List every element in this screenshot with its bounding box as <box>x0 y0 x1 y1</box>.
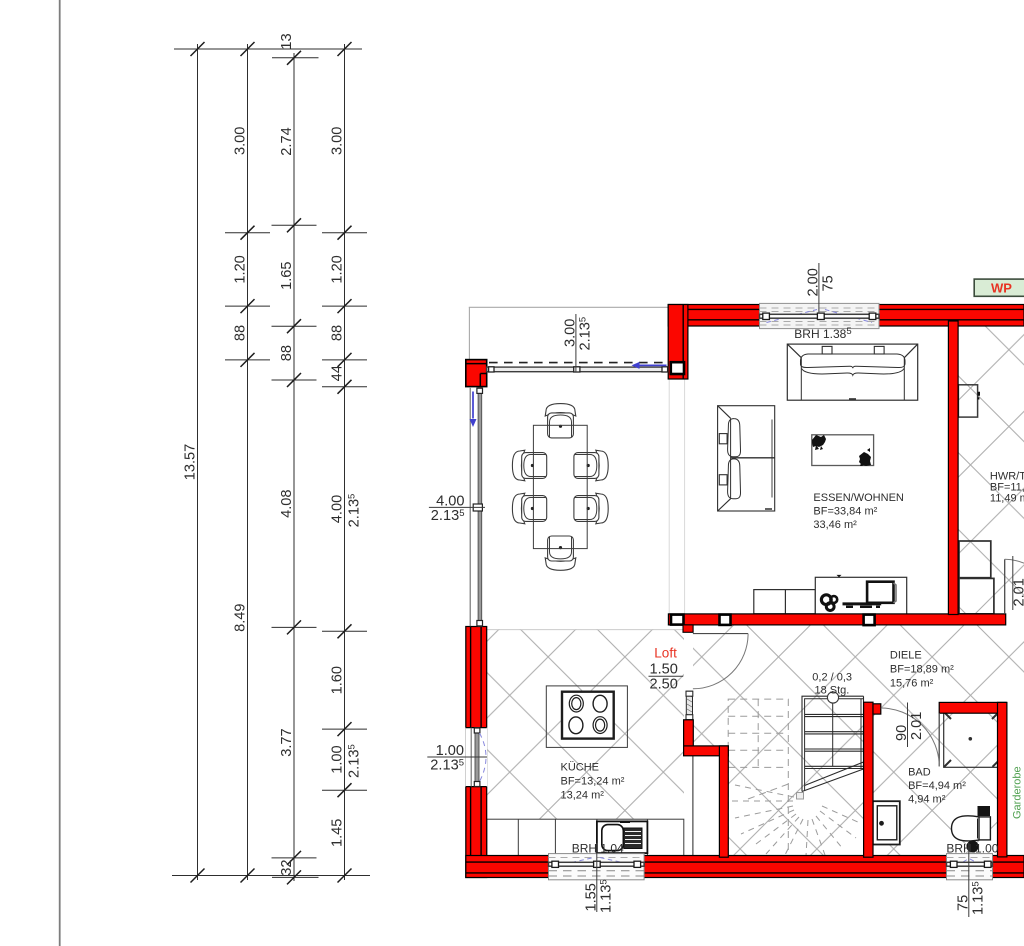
svg-text:BF=33,84 m²: BF=33,84 m² <box>813 506 877 518</box>
svg-text:1.20: 1.20 <box>233 255 249 283</box>
svg-text:4,94 m²: 4,94 m² <box>908 794 946 806</box>
svg-text:Garderobe: Garderobe <box>1012 766 1024 819</box>
svg-text:WP: WP <box>991 281 1012 296</box>
svg-text:75: 75 <box>955 895 971 911</box>
svg-text:4.08: 4.08 <box>279 489 295 517</box>
svg-text:88: 88 <box>279 345 295 361</box>
svg-text:2.01: 2.01 <box>1012 578 1024 606</box>
svg-text:2.50: 2.50 <box>650 677 678 693</box>
svg-text:13: 13 <box>279 33 295 49</box>
svg-text:1.50: 1.50 <box>650 662 678 678</box>
svg-text:8.49: 8.49 <box>233 603 249 631</box>
svg-text:KÜCHE: KÜCHE <box>561 762 600 774</box>
svg-text:1.00: 1.00 <box>330 745 346 773</box>
svg-text:BF=13,24 m²: BF=13,24 m² <box>561 776 625 788</box>
svg-text:11,49 m²: 11,49 m² <box>990 493 1024 505</box>
svg-text:90: 90 <box>894 725 910 741</box>
svg-text:88: 88 <box>233 325 249 341</box>
svg-text:13.57: 13.57 <box>183 444 199 481</box>
svg-text:44: 44 <box>330 365 346 381</box>
svg-text:BF=4,94 m²: BF=4,94 m² <box>908 780 966 792</box>
svg-text:BAD: BAD <box>908 767 931 779</box>
svg-text:3.00: 3.00 <box>233 127 249 155</box>
svg-text:ESSEN/WOHNEN: ESSEN/WOHNEN <box>813 492 904 504</box>
svg-text:88: 88 <box>330 325 346 341</box>
svg-text:BRH 1.00: BRH 1.00 <box>946 842 998 856</box>
svg-text:2.01: 2.01 <box>909 712 925 740</box>
svg-text:4.00: 4.00 <box>330 495 346 523</box>
svg-text:13,24 m²: 13,24 m² <box>561 790 605 802</box>
svg-text:1.20: 1.20 <box>330 255 346 283</box>
svg-text:2.00: 2.00 <box>805 268 821 296</box>
svg-text:Loft: Loft <box>654 646 677 661</box>
svg-text:15,76 m²: 15,76 m² <box>890 678 934 690</box>
svg-text:0,2 / 0,3: 0,2 / 0,3 <box>812 672 852 684</box>
svg-text:1.55: 1.55 <box>583 883 599 911</box>
svg-text:3.00: 3.00 <box>330 127 346 155</box>
svg-text:3.00: 3.00 <box>562 319 578 347</box>
svg-text:BRH 1.385: BRH 1.385 <box>794 326 851 341</box>
svg-text:1.60: 1.60 <box>330 666 346 694</box>
svg-text:2.74: 2.74 <box>279 127 295 155</box>
svg-text:18 Stg.: 18 Stg. <box>815 685 850 697</box>
svg-text:75: 75 <box>820 275 836 291</box>
svg-text:32: 32 <box>279 859 295 875</box>
svg-text:DIELE: DIELE <box>890 650 922 662</box>
svg-text:BF=18,89 m²: BF=18,89 m² <box>890 664 954 676</box>
svg-text:33,46 m²: 33,46 m² <box>813 519 857 531</box>
svg-text:3.77: 3.77 <box>279 728 295 756</box>
svg-text:1.45: 1.45 <box>330 819 346 847</box>
svg-text:1.65: 1.65 <box>279 261 295 289</box>
